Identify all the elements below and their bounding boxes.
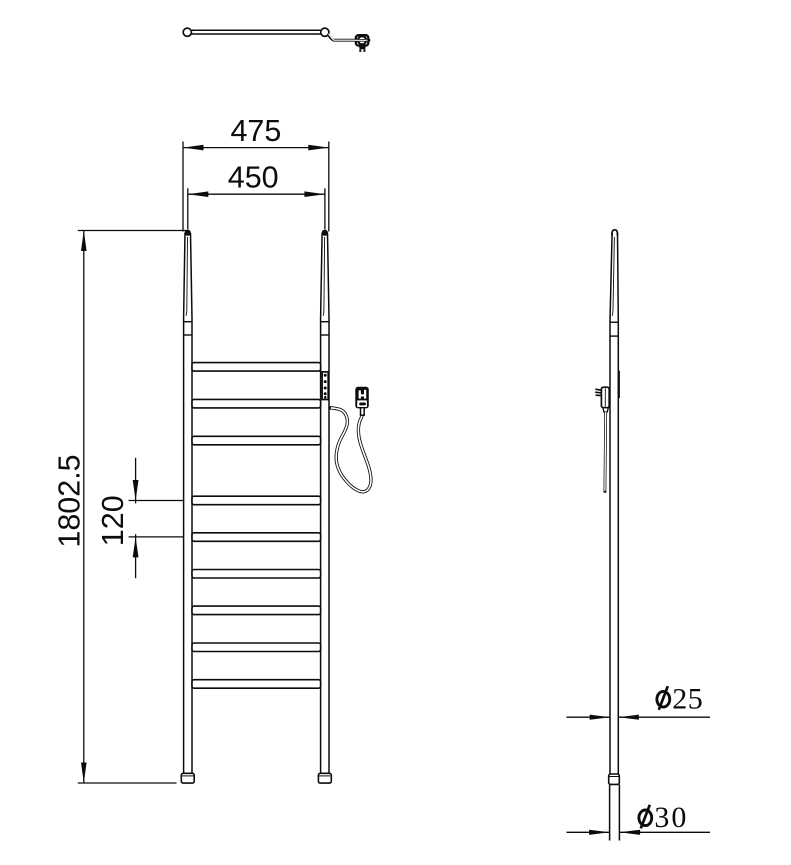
svg-text:1802.5: 1802.5 — [53, 454, 87, 547]
svg-text:475: 475 — [230, 114, 281, 148]
svg-text:120: 120 — [96, 495, 130, 546]
svg-text:25: 25 — [672, 683, 703, 716]
svg-text:30: 30 — [654, 801, 688, 834]
svg-text:450: 450 — [228, 160, 279, 194]
